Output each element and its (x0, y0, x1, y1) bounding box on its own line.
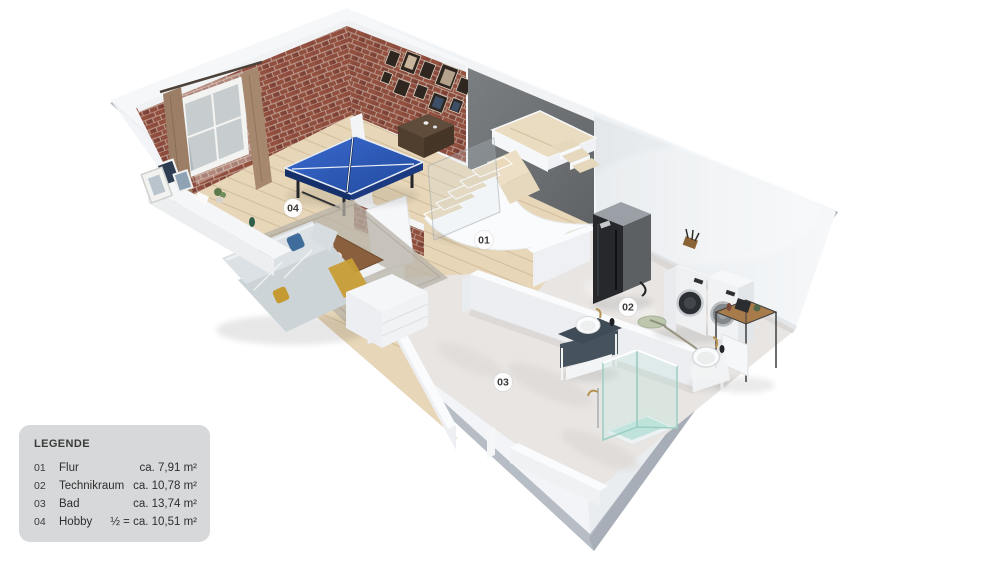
legend-row-bad: 03 Bad ca. 13,74 m² (34, 495, 197, 513)
legend-room-area: ca. 10,78 m² (133, 477, 197, 495)
legend-room-name: Technikraum (59, 477, 133, 495)
room-label-hobby: 04 (284, 199, 303, 218)
legend-room-area: ca. 7,91 m² (139, 459, 197, 477)
svg-text:01: 01 (478, 235, 490, 247)
legend-row-technikraum: 02 Technikraum ca. 10,78 m² (34, 477, 197, 495)
legend-room-name: Flur (59, 459, 139, 477)
green-vase (249, 217, 255, 227)
svg-text:04: 04 (287, 203, 299, 215)
legend-room-name: Bad (59, 495, 133, 513)
wall-post (487, 427, 495, 458)
room-label-technikraum: 02 (619, 298, 638, 317)
floorplan-page: 01 02 03 04 LEGENDE 01 Flur ca. 7,91 m² … (0, 0, 1000, 562)
svg-text:02: 02 (622, 302, 634, 314)
legend-room-number: 01 (34, 459, 59, 477)
legend-room-area: ca. 13,74 m² (133, 495, 197, 513)
legend-title: LEGENDE (34, 438, 197, 450)
legend-room-area: ½ = ca. 10,51 m² (110, 513, 197, 531)
legend-row-hobby: 04 Hobby ½ = ca. 10,51 m² (34, 513, 197, 531)
legend-room-number: 02 (34, 477, 59, 495)
room-label-flur: 01 (475, 231, 494, 250)
svg-text:03: 03 (497, 377, 509, 389)
room-label-bad: 03 (494, 373, 513, 392)
legend-box: LEGENDE 01 Flur ca. 7,91 m² 02 Technikra… (19, 425, 210, 542)
legend-room-name: Hobby (59, 513, 110, 531)
legend-room-number: 03 (34, 495, 59, 513)
legend-row-flur: 01 Flur ca. 7,91 m² (34, 459, 197, 477)
legend-room-number: 04 (34, 513, 59, 531)
